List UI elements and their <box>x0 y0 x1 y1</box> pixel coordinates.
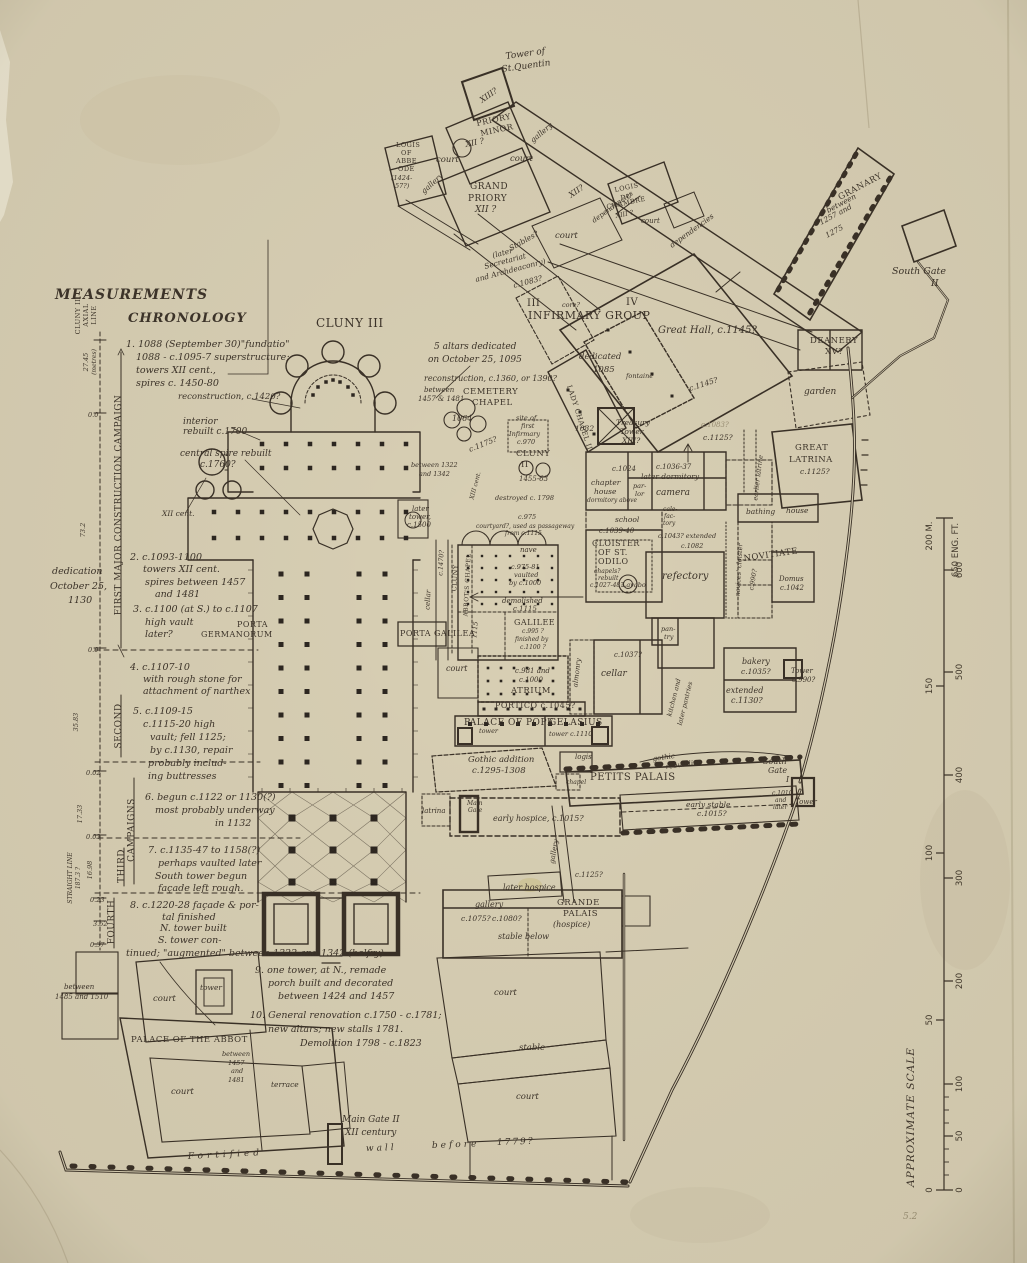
scale-tick-label: 500 <box>955 664 965 680</box>
plan-label: Gate <box>768 766 787 775</box>
plan-label: nave <box>520 546 537 554</box>
plan-label: new altars; new stalls 1781. <box>268 1024 403 1035</box>
plan-label: reconstruction, c.1420? <box>178 392 281 402</box>
plan-label: XII cent. <box>161 509 195 518</box>
plan-label: CHAPEL <box>472 398 513 408</box>
plan-label: Treasury <box>616 418 651 427</box>
plan-label: early hospice, c.1015? <box>493 814 584 823</box>
plan-label: tinued; "augmented" between 1322 and 134… <box>126 948 384 959</box>
plan-label: court <box>171 1087 194 1097</box>
plan-label: (metres) <box>91 348 98 374</box>
plan-label: Lavabo <box>621 581 646 589</box>
plan-label: c.1760? <box>200 460 236 470</box>
plan-label: tower <box>479 727 499 735</box>
plan-label: destroyed c. 1798 <box>495 494 554 502</box>
plan-label: c.1125? <box>800 467 831 476</box>
plan-label: tower <box>200 983 222 992</box>
plan-label: between 1424 and 1457 <box>278 991 395 1002</box>
plan-label: cellar <box>423 589 432 610</box>
plan-label: c.1000 <box>519 676 544 684</box>
plan-label: c.1470? <box>436 549 445 576</box>
plan-label: 16.98 <box>86 861 94 880</box>
plan-label: XIII? <box>621 436 641 445</box>
plan-label: tory <box>663 520 676 527</box>
plan-label: 1457 <box>228 1059 245 1067</box>
plan-label: 0.02 <box>86 769 100 777</box>
plan-label: par- <box>633 482 646 490</box>
plan-label: 57?) <box>395 182 410 190</box>
plan-label: lor <box>635 490 645 498</box>
plan-label: court <box>153 994 176 1004</box>
plan-label: by c.1000 <box>509 579 541 587</box>
plan-label: court <box>446 664 468 673</box>
plan-label: pan- <box>661 625 675 633</box>
plan-label: PORTA GALILEA <box>400 629 475 638</box>
plan-label: on October 25, 1095 <box>428 355 522 365</box>
plan-label: house <box>594 487 617 496</box>
plan-label: fontaine <box>625 372 653 380</box>
plan-label: 4. c.1107-10 <box>129 662 190 673</box>
plan-label: attachment of narthex <box>143 686 251 697</box>
plan-label: (1424- <box>391 174 412 182</box>
plan-label: court <box>555 231 578 241</box>
plan-label: 35.83 <box>72 713 80 732</box>
plan-label: later <box>412 505 429 513</box>
plan-label: ABBE <box>395 157 417 165</box>
plan-label: 0.0 <box>88 411 98 419</box>
plan-label: early stable <box>686 800 731 809</box>
plan-label: with rough stone for <box>143 674 243 685</box>
plan-label: cellar <box>601 669 627 679</box>
plan-label: and 1342 <box>419 470 450 478</box>
plan-label: between <box>222 1050 250 1058</box>
plan-label: CLUNY III <box>316 316 384 330</box>
plan-label: in 1132 <box>215 818 251 829</box>
plan-label: LOGIS <box>396 141 420 149</box>
plan-label: GALILEE <box>514 618 555 627</box>
plan-label: FIRST MAJOR CONSTRUCTION CAMPAIGN <box>114 395 124 616</box>
plan-label: by c.1130, repair <box>150 745 234 756</box>
plan-label: Tower <box>795 798 817 806</box>
plan-label: 1. 1088 (September 30)"fundatio" <box>126 339 290 350</box>
plan-label: XII ? <box>474 205 496 215</box>
plan-label: dormitory above <box>587 497 638 504</box>
plan-label: core? <box>562 301 581 309</box>
plan-label: 5 altars dedicated <box>434 342 517 352</box>
plan-label: c.1036-37 <box>656 463 692 471</box>
plan-label: c.1500 <box>407 521 432 529</box>
plan-label: THIRD <box>117 849 127 883</box>
plan-label: STRAIGHT LINE <box>67 852 74 904</box>
plan-label: 1457 & 1481 <box>418 395 464 403</box>
plan-label: 0.0 <box>88 646 98 654</box>
plan-label: first <box>520 422 535 430</box>
plan-label: PALACE OF THE ABBOT <box>131 1035 248 1045</box>
plan-label: logis <box>575 753 592 761</box>
plan-label: c.1125? <box>703 433 734 442</box>
plan-label: school <box>615 515 640 524</box>
plan-label: court <box>641 217 660 225</box>
plan-label: gallery <box>475 900 504 909</box>
plan-label: CLUNY III <box>74 296 82 335</box>
plan-label: 6. begun c.1122 or 1130(?) <box>145 792 276 803</box>
plan-label: tower, <box>409 513 431 521</box>
plan-label: 7. c.1135-47 to 1158(?) <box>148 845 260 856</box>
plan-label: Great Hall, c.1145? <box>658 325 758 336</box>
plan-label: c.975-81 <box>511 563 540 571</box>
plan-label: dedicated <box>579 352 622 362</box>
plan-label: dedication <box>52 566 103 577</box>
plan-label: later hospice <box>503 883 556 892</box>
plan-label: c.1042 <box>780 584 805 592</box>
scale-tick-label: 50 <box>955 1131 965 1142</box>
plan-label: Main Gate II <box>341 1115 400 1125</box>
plan-label: and <box>231 1067 243 1075</box>
plan-label: between <box>64 983 95 991</box>
plan-label: camera <box>656 488 690 498</box>
plan-label: PALACE OF POPE <box>464 718 554 728</box>
plan-label: ODILO <box>598 557 629 566</box>
plan-label: OF <box>401 149 412 157</box>
plan-label: c.1024 <box>612 465 636 473</box>
plan-label: c.1015? <box>697 809 728 818</box>
plan-label: c.1035? <box>741 667 772 676</box>
plan-label: porch built and decorated <box>268 978 393 989</box>
plan-label: Gothic addition <box>468 755 534 765</box>
plan-label: between <box>424 386 455 394</box>
plan-label: 9. one tower, at N., remade <box>255 965 387 976</box>
scale-tick-label: 50 <box>925 1015 935 1026</box>
plan-label: CLOISTER <box>592 539 640 548</box>
plan-label: finished by <box>514 636 549 643</box>
plan-label: bakery <box>742 657 770 666</box>
plan-label: c.981 and <box>515 667 550 675</box>
plan-label: spires between 1457 <box>145 577 246 588</box>
plan-label: XII century <box>344 1128 397 1138</box>
scale-tick-label: 650 ENG. FT. <box>951 523 961 577</box>
plan-label: before <box>432 1139 480 1151</box>
plan-label: CLUNY <box>450 564 459 591</box>
plan-label: and <box>775 797 786 804</box>
plan-label: c.1130? <box>731 696 763 705</box>
plan-label: CLUNY <box>516 449 550 459</box>
plan-label: later <box>773 804 788 811</box>
plan-label: Main <box>466 800 483 807</box>
chronology-heading: CHRONOLOGY <box>128 311 248 326</box>
plan-label: cale- <box>663 506 677 513</box>
plan-label: S. tower con- <box>158 935 221 946</box>
plan-label: 187.3 ? <box>75 866 82 889</box>
scale-tick-label: 200 M. <box>925 522 935 551</box>
plan-label: CAMPAIGNS <box>127 798 137 862</box>
plan-label: house <box>786 506 809 515</box>
plan-label: rebuilt c.1700 <box>183 427 248 437</box>
plan-label: c.1010 <box>772 790 793 797</box>
plan-label: garden <box>804 387 837 397</box>
plan-label: perhaps vaulted later <box>158 858 263 869</box>
plan-label: c.990? <box>792 676 816 684</box>
scale-tick-label: 100 <box>955 1076 965 1092</box>
cluny-abbey-plan: 600500400300200100500150100500200 M.650 … <box>0 0 1027 1263</box>
plan-label: c.975 <box>518 513 536 521</box>
plan-label: chapels? <box>594 568 621 575</box>
plan-label: try <box>664 633 674 641</box>
plan-label: GERMANORUM <box>201 630 273 639</box>
plan-label: c.1100 ? <box>520 644 546 651</box>
plan-label: IV <box>626 297 638 308</box>
plan-label: 1088 - c.1095-7 superstructure; <box>136 352 289 363</box>
plan-label: probably includ- <box>148 758 227 769</box>
plan-label: Tower <box>791 667 813 675</box>
plan-label: GRAND <box>470 182 508 192</box>
plan-label: tal finished <box>162 912 216 923</box>
plan-label: c.1080? <box>492 914 523 923</box>
plan-label: fac- <box>663 513 675 520</box>
plan-sheet: Measurements — Chronology plan sheet <box>0 0 1027 1263</box>
plan-label: towers XII cent. <box>143 564 220 575</box>
plan-label: court <box>494 988 517 998</box>
scale-tick-label: 200 <box>955 973 965 989</box>
plan-label: 0.37 <box>90 941 105 949</box>
plan-label: c.1075? <box>461 914 492 923</box>
plan-label: 1085 <box>593 365 615 375</box>
plan-label: c.970 <box>517 438 535 446</box>
plan-label: SECOND <box>114 703 124 748</box>
plan-label: AXIAL <box>82 303 90 328</box>
scale-tick-label: 400 <box>955 767 965 783</box>
plan-label: reconstruction, c.1360, or 1390? <box>424 374 558 383</box>
plan-label: October 25, <box>50 581 107 592</box>
plan-label: OF ST. <box>598 548 628 557</box>
plan-label: Domus <box>778 575 804 583</box>
plan-label: most probably underway <box>155 805 275 816</box>
plan-label: c.1083? <box>701 421 729 429</box>
plan-label: PALAIS <box>563 909 598 919</box>
plan-label: Demolition 1798 - c.1823 <box>299 1038 422 1049</box>
plan-label: wall <box>366 1143 397 1154</box>
plan-label: refectory <box>662 571 709 582</box>
scale-tick-label: 300 <box>955 870 965 886</box>
plan-label: c.1043? extended <box>658 532 716 540</box>
plan-label: later dormitory <box>641 472 700 481</box>
plan-label: court <box>510 154 533 164</box>
plan-label: South Gate <box>892 266 946 277</box>
plan-label: stable <box>519 1043 545 1053</box>
plan-label: from c.1115 <box>504 530 542 537</box>
plan-label: demolished <box>502 597 543 605</box>
plan-label: GRANDE <box>557 898 600 908</box>
plan-label: 1455-63 <box>519 475 549 483</box>
plan-label: towers XII cent., <box>136 365 216 376</box>
plan-label: site of <box>516 414 538 422</box>
plan-label: bathing <box>746 507 775 516</box>
plan-label: PORTA <box>237 620 268 629</box>
plan-label: c.1115 <box>513 605 538 613</box>
plan-label: 0.23 <box>90 896 104 904</box>
plan-label: c.1082 <box>681 542 703 550</box>
plan-label: 2. c.1093-1100 <box>129 552 202 563</box>
plan-label: rebuilt <box>598 575 619 582</box>
plan-label: c.1295-1308 <box>472 766 526 776</box>
scale-tick-label: 0 <box>925 1187 935 1192</box>
scale-tick-label: 0 <box>955 1187 965 1192</box>
plan-label: vault; fell 1125; <box>150 732 226 743</box>
plan-label: III <box>527 298 540 309</box>
plan-label: courtyard?, used as passageway <box>476 523 575 530</box>
plan-label: 5.2 <box>903 1212 918 1222</box>
plan-label: PETITS PALAIS <box>590 772 676 783</box>
scale-tick-label: 100 <box>925 845 935 861</box>
plan-label: II <box>930 278 939 289</box>
plan-label: c.1115-20 high <box>143 719 215 730</box>
plan-label: c.1037? <box>614 651 642 659</box>
plan-label: 73.2 <box>79 523 87 537</box>
plan-label: 1064 <box>452 414 472 423</box>
plan-label: 3.52 <box>93 920 107 928</box>
plan-label: extended <box>726 686 763 695</box>
plan-label: high vault <box>145 617 194 628</box>
plan-label: CEMETERY <box>463 387 518 397</box>
plan-label: c.1039-40 <box>599 527 635 535</box>
plan-label: 1485 and 1510 <box>55 993 109 1001</box>
plan-label: façade left rough. <box>157 883 244 894</box>
plan-label: later? <box>145 629 174 640</box>
plan-label: South tower begun <box>155 871 247 882</box>
plan-label: 3. c.1100 (at S.) to c.1107 <box>133 604 259 615</box>
plan-label: 0.03 <box>86 833 100 841</box>
plan-label: spires c. 1450-80 <box>136 378 219 389</box>
plan-label: tower c.1110 <box>549 730 592 738</box>
plan-label: 1481 <box>228 1076 245 1084</box>
plan-label: court <box>436 155 459 165</box>
plan-label: and 1481 <box>155 589 200 600</box>
plan-label: (hospice) <box>553 920 590 929</box>
plan-label: 1032 <box>575 424 594 433</box>
plan-label: ODE <box>398 165 415 173</box>
plan-label: 10. General renovation c.1750 - c.1781; <box>250 1010 442 1021</box>
plan-label: GREAT <box>795 443 828 453</box>
plan-label: ing buttresses <box>148 771 217 782</box>
plan-label: INFIRMARY GROUP <box>528 309 650 322</box>
plan-label: latrina <box>422 807 446 815</box>
plan-label: court <box>516 1092 539 1102</box>
plan-label: Infirmary <box>508 430 540 438</box>
plan-label: XV? <box>825 347 843 357</box>
plan-label: ATRIUM <box>510 686 551 696</box>
plan-label: II <box>521 460 529 470</box>
plan-label: South <box>763 757 787 766</box>
plan-label: LATRINA <box>789 455 833 465</box>
plan-label: DEANERY <box>810 336 858 346</box>
plan-label: 5. c.1109-15 <box>133 706 193 717</box>
plan-label: 27.45 <box>82 353 90 373</box>
plan-label: LINE <box>90 305 98 324</box>
plan-label: chapter <box>591 478 621 487</box>
plan-label: PORTICO c.1045? <box>495 701 576 710</box>
plan-label: PRIORY <box>468 194 508 204</box>
plan-label: GELASIUS <box>549 718 603 728</box>
plan-label: central spire rebuilt <box>180 449 272 459</box>
plan-label: vaulted <box>514 571 538 579</box>
plan-label: N. tower built <box>159 923 227 934</box>
plan-label: c.995 ? <box>522 628 545 635</box>
scale-tick-label: 150 <box>925 678 935 694</box>
plan-label: c.1027-48? <box>590 582 624 589</box>
plan-label: Gate <box>468 807 483 814</box>
plan-label: 17.33 <box>76 805 84 824</box>
plan-label: terrace <box>271 1080 299 1089</box>
plan-label: between 1322 <box>411 461 458 469</box>
plan-label: stable below <box>498 932 549 941</box>
plan-label: Tower, <box>620 427 645 436</box>
plan-label: 8. c.1220-28 façade & por- <box>130 900 259 911</box>
plan-label: c.1125? <box>575 871 603 879</box>
plan-label: 1130 <box>68 595 92 606</box>
plan-label: FOURTH <box>107 900 117 945</box>
plan-label: interior <box>183 417 218 427</box>
approximate-scale-title: APPROXIMATE SCALE <box>905 1047 917 1188</box>
plan-label: chapel <box>566 779 586 786</box>
plan-label: 1779? <box>497 1137 535 1148</box>
